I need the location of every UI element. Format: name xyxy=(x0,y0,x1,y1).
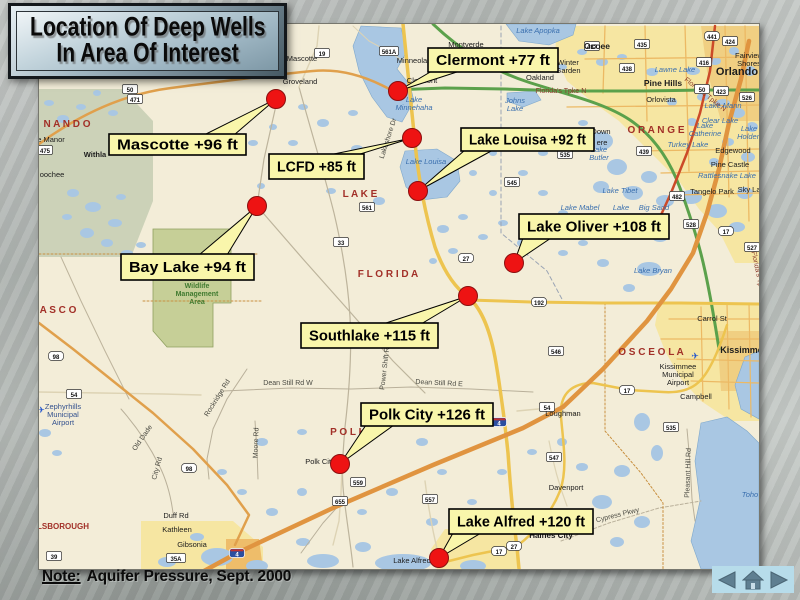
route-number: 424 xyxy=(725,40,736,46)
pond xyxy=(416,438,428,446)
well-dot-polk-city xyxy=(331,455,350,474)
pond xyxy=(348,110,358,116)
callout-tail xyxy=(383,296,468,324)
route-number: 545 xyxy=(507,181,518,187)
route-number: 559 xyxy=(353,481,364,487)
pond xyxy=(497,469,507,475)
callout-label: Lake Alfred +120 ft xyxy=(457,515,585,531)
pond xyxy=(578,120,588,126)
pond xyxy=(623,284,635,292)
route-number: 546 xyxy=(551,350,562,356)
pond xyxy=(296,538,310,546)
route-435-shield: 435 xyxy=(635,40,650,49)
well-dot-lake-oliver xyxy=(505,254,524,273)
pond xyxy=(297,488,307,496)
pond xyxy=(478,234,488,240)
pond xyxy=(39,429,51,437)
town-label: Davenport xyxy=(549,483,585,492)
footnote: Note:Aquifer Pressure, Sept. 2000 xyxy=(42,568,291,586)
road-name-label: Old Dade xyxy=(131,424,154,452)
route-50-shield: 50 xyxy=(695,85,710,94)
route-number: 17 xyxy=(624,389,631,395)
road xyxy=(469,300,759,304)
pond xyxy=(614,465,630,477)
road xyxy=(301,503,341,553)
pond xyxy=(357,509,367,515)
road-name-label: Florida's Tpke xyxy=(750,251,759,295)
county-label: A S C O xyxy=(40,305,77,316)
pond xyxy=(93,90,101,96)
pond xyxy=(518,170,528,176)
pond xyxy=(527,449,537,455)
pond xyxy=(429,258,437,264)
well-callout-southlake: Southlake +115 ft xyxy=(301,287,478,349)
home-icon xyxy=(742,569,764,591)
pond xyxy=(116,194,126,200)
route-number: 192 xyxy=(534,301,545,307)
route-475-shield: 475 xyxy=(39,146,53,155)
pond xyxy=(266,508,278,516)
road-name-label: Lakeshore Dr xyxy=(379,117,399,160)
pond xyxy=(437,469,447,475)
well-dot-lcfd xyxy=(403,129,422,148)
route-number: 416 xyxy=(699,61,710,67)
pond xyxy=(437,225,449,233)
route-545-shield: 545 xyxy=(505,178,520,187)
route-number: 50 xyxy=(699,88,706,94)
town-label: Pine Castle xyxy=(711,160,749,169)
route-439-shield: 439 xyxy=(637,147,652,156)
well-dot-lake-alfred xyxy=(430,549,449,568)
route-471-shield: 471 xyxy=(128,95,143,104)
pond xyxy=(489,190,497,196)
route-number: 98 xyxy=(53,355,60,361)
lake-label: Lake Tibet xyxy=(603,186,639,195)
route-number: 547 xyxy=(549,456,560,462)
route-27-shield: 27 xyxy=(507,542,522,551)
route-number: 54 xyxy=(71,393,78,399)
map-container: Florida's Tpke NFlorida's Tpke NFlorida'… xyxy=(38,23,760,570)
pond xyxy=(217,469,227,475)
route-482-shield: 482 xyxy=(670,192,685,201)
pond xyxy=(458,214,468,220)
route-number: 439 xyxy=(639,150,650,156)
town-label: Loughman xyxy=(545,409,580,418)
airport-icon: ✈ xyxy=(39,405,45,415)
route-27-shield: 27 xyxy=(459,254,474,263)
town-label: Gibsonia xyxy=(177,540,207,549)
lake-label: Turkey Lake xyxy=(668,140,709,149)
route-number: 27 xyxy=(511,545,518,551)
route-559-shield: 559 xyxy=(351,478,366,487)
pond xyxy=(641,171,657,183)
route-number: 561 xyxy=(362,206,373,212)
county-label: LSBOROUGH xyxy=(39,522,89,531)
town-label: Garden xyxy=(555,66,580,75)
callout-label: Bay Lake +94 ft xyxy=(129,260,246,276)
town-label: Mascotte xyxy=(287,54,317,63)
pond xyxy=(610,537,624,547)
route-number: 423 xyxy=(716,90,727,96)
lake-label: Minnehaha xyxy=(395,103,432,112)
route-17-shield: 17 xyxy=(620,386,635,395)
lake-label: Lake Louisa xyxy=(406,157,446,166)
route-number: 98 xyxy=(186,467,193,473)
route-54-shield: 54 xyxy=(67,390,82,399)
lake-label: Butler xyxy=(589,153,609,162)
route-527-shield: 527 xyxy=(745,243,760,252)
county-label: L A K E xyxy=(343,189,378,200)
pond xyxy=(592,495,612,509)
well-dot-lake-louisa xyxy=(409,182,428,201)
pond xyxy=(386,488,398,496)
route-number: 535 xyxy=(666,426,677,432)
pond xyxy=(578,240,588,246)
well-callout-lcfd: LCFD +85 ft xyxy=(269,129,422,180)
route-50-shield: 50 xyxy=(123,85,138,94)
pond xyxy=(307,554,339,568)
pond xyxy=(298,104,308,110)
route-number: 438 xyxy=(622,67,633,73)
town-label: Oakland xyxy=(526,73,554,82)
road-name-label: City Rd xyxy=(151,457,164,481)
pond xyxy=(498,220,508,226)
route-number: 50 xyxy=(127,88,134,94)
well-callout-polk-city: Polk City +126 ft xyxy=(331,403,494,474)
town-label: Orlovista xyxy=(646,95,676,104)
forward-arrow-icon xyxy=(769,570,791,590)
pond xyxy=(108,219,122,227)
town-label: oochee xyxy=(40,170,65,179)
town-label: Lake Alfred xyxy=(393,556,431,565)
lake-label: Lake xyxy=(507,104,523,113)
town-label: Kissimmee xyxy=(720,345,759,355)
pond xyxy=(237,489,247,495)
county-label: N A N D O xyxy=(43,119,90,130)
route-535-shield: 535 xyxy=(664,423,679,432)
road xyxy=(605,303,663,569)
pond xyxy=(634,413,650,431)
town-label: Pine Hills xyxy=(644,78,683,88)
callout-label: Clermont +77 ft xyxy=(436,53,550,69)
route-number: 475 xyxy=(40,149,51,155)
title-box: Location Of Deep Wells In Area Of Intere… xyxy=(8,3,287,79)
callout-label: Lake Louisa +92 ft xyxy=(469,133,586,149)
pond xyxy=(257,183,265,189)
callout-tail xyxy=(204,99,276,135)
route-557-shield: 557 xyxy=(423,495,438,504)
callout-label: LCFD +85 ft xyxy=(277,160,356,176)
pond xyxy=(634,516,650,528)
route-438-shield: 438 xyxy=(620,64,635,73)
pond xyxy=(248,140,258,146)
route-number: 527 xyxy=(747,246,758,252)
road-name-label: Moore Rd xyxy=(252,427,260,458)
pond xyxy=(651,445,663,461)
callout-label: Mascotte +96 ft xyxy=(117,138,238,154)
town-label: Sky Lake xyxy=(738,185,759,194)
next-slide-button[interactable] xyxy=(768,569,792,591)
route-number: 19 xyxy=(319,52,326,58)
route-526-shield: 526 xyxy=(740,93,755,102)
florida-map: Florida's Tpke NFlorida's Tpke NFlorida'… xyxy=(39,24,759,569)
pond xyxy=(288,140,298,146)
pond xyxy=(469,170,477,176)
well-dot-bay-lake xyxy=(248,197,267,216)
route-655-shield: 655 xyxy=(333,497,348,506)
lake-label: Lawne Lake xyxy=(655,65,695,74)
lake-label: Lake Mann xyxy=(704,101,741,110)
pond xyxy=(538,190,548,196)
route-17-shield: 17 xyxy=(492,547,507,556)
airport-icon: ✈ xyxy=(691,351,699,361)
footnote-label: Note: xyxy=(42,568,81,585)
pond xyxy=(597,259,609,267)
route-number: 435 xyxy=(637,43,648,49)
town-label: Kathleen xyxy=(162,525,192,534)
route-98-shield: 98 xyxy=(182,464,197,473)
lake-label: Lake xyxy=(613,203,629,212)
lake-label: Lake Apopka xyxy=(516,26,560,35)
town-label: Wildlife xyxy=(185,283,210,290)
route-number: 526 xyxy=(742,96,753,102)
route-number: 482 xyxy=(672,195,683,201)
county-label: O S C E O L A xyxy=(618,347,684,358)
town-label: Carrol St xyxy=(697,314,728,323)
town-label: Management xyxy=(176,291,219,298)
road-name-label: Florida's Tpke N xyxy=(536,88,587,95)
pond xyxy=(85,202,101,212)
route-number: 528 xyxy=(686,223,697,229)
town-label: e Manor xyxy=(39,135,65,144)
town-label: Airport xyxy=(667,378,690,387)
title-line-2: In Area Of Interest xyxy=(56,40,238,68)
route-number: 561A xyxy=(382,50,397,56)
route-528-shield: 528 xyxy=(684,220,699,229)
pond xyxy=(44,100,54,106)
road-name-label: Dean Still Rd E xyxy=(415,379,463,388)
slide-nav-bar xyxy=(712,566,794,593)
route-424-shield: 424 xyxy=(723,37,738,46)
back-arrow-icon xyxy=(715,570,737,590)
prev-slide-button[interactable] xyxy=(714,569,738,591)
pond xyxy=(355,542,371,552)
pond xyxy=(108,110,118,116)
route-35A-shield: 35A xyxy=(167,554,186,563)
callout-label: Southlake +115 ft xyxy=(309,329,430,345)
pond xyxy=(52,450,62,456)
route-number: 17 xyxy=(496,550,503,556)
slide: Florida's Tpke NFlorida's Tpke NFlorida'… xyxy=(0,0,800,600)
route-98-shield: 98 xyxy=(49,352,64,361)
pond xyxy=(607,159,627,175)
town-label: Withla xyxy=(84,150,107,159)
lake-label: Rattlesnake Lake xyxy=(698,171,756,180)
town-label: Area xyxy=(189,299,205,306)
lake-label: Lake Mabel xyxy=(561,203,600,212)
town-label: Minneola xyxy=(397,56,428,65)
road-name-label: Power Shift Rd xyxy=(379,343,392,390)
route-number: 39 xyxy=(51,555,58,561)
callout-label: Polk City +126 ft xyxy=(369,408,485,424)
route-39-shield: 39 xyxy=(47,552,62,561)
footnote-text: Aquifer Pressure, Sept. 2000 xyxy=(87,568,292,585)
route-number: 441 xyxy=(707,35,718,41)
road-name-label: Dean Still Rd W xyxy=(263,380,313,387)
county-label: O R A N G E xyxy=(627,125,684,136)
route-441-shield: 441 xyxy=(705,32,720,41)
callout-label: Lake Oliver +108 ft xyxy=(527,220,661,236)
route-number: 655 xyxy=(335,500,346,506)
town-label: Duff Rd xyxy=(163,511,188,520)
pond xyxy=(76,104,86,110)
pond xyxy=(80,228,94,238)
lake-label: Catherine xyxy=(689,129,722,138)
county-label: F L O R I D A xyxy=(358,269,419,280)
town-label: Ocoee xyxy=(584,41,610,51)
road xyxy=(39,392,201,395)
route-546-shield: 546 xyxy=(549,347,564,356)
route-number: 35A xyxy=(170,557,182,563)
route-547-shield: 547 xyxy=(547,453,562,462)
road xyxy=(223,387,533,392)
route-561-shield: 561 xyxy=(360,203,375,212)
well-dot-clermont xyxy=(389,82,408,101)
route-number: 33 xyxy=(338,241,345,247)
title-panel: Location Of Deep Wells In Area Of Intere… xyxy=(16,11,279,71)
town-label: Airport xyxy=(52,418,75,427)
route-number: 557 xyxy=(425,498,436,504)
title-bevel-frame: Location Of Deep Wells In Area Of Intere… xyxy=(11,6,284,76)
pond xyxy=(62,214,72,220)
pond xyxy=(136,242,146,248)
town-label: Edgewood xyxy=(715,146,750,155)
lake-label: Big Sand xyxy=(639,203,670,212)
pond xyxy=(576,463,588,471)
pond xyxy=(67,189,79,197)
route-561A-shield: 561A xyxy=(380,47,399,56)
town-label: Groveland xyxy=(283,77,318,86)
route-192-shield: 192 xyxy=(532,298,547,307)
callout-tail xyxy=(329,138,412,155)
pond xyxy=(101,239,113,247)
route-33-shield: 33 xyxy=(334,238,349,247)
route-423-shield: 423 xyxy=(714,87,729,96)
pond xyxy=(467,499,477,505)
town-label: Campbell xyxy=(680,392,712,401)
route-416-shield: 416 xyxy=(697,58,712,67)
route-number: 17 xyxy=(723,230,730,236)
home-button[interactable] xyxy=(741,569,765,591)
lake-label: Holden xyxy=(737,132,759,141)
route-17-shield: 17 xyxy=(719,227,734,236)
well-dot-mascotte xyxy=(267,90,286,109)
well-dot-southlake xyxy=(459,287,478,306)
route-number: 27 xyxy=(463,257,470,263)
route-number: 471 xyxy=(130,98,141,104)
pond xyxy=(317,119,329,127)
route-number: 535 xyxy=(560,153,571,159)
town-label: Shores xyxy=(737,59,759,68)
pond xyxy=(297,429,307,435)
lake-label: Toho xyxy=(742,490,758,499)
town-label: Tangelo Park xyxy=(690,187,734,196)
road xyxy=(61,257,129,399)
pond xyxy=(558,250,568,256)
pond xyxy=(448,248,458,254)
lake-label: Lake Bryan xyxy=(634,266,672,275)
route-4-shield: 4 xyxy=(230,549,245,559)
